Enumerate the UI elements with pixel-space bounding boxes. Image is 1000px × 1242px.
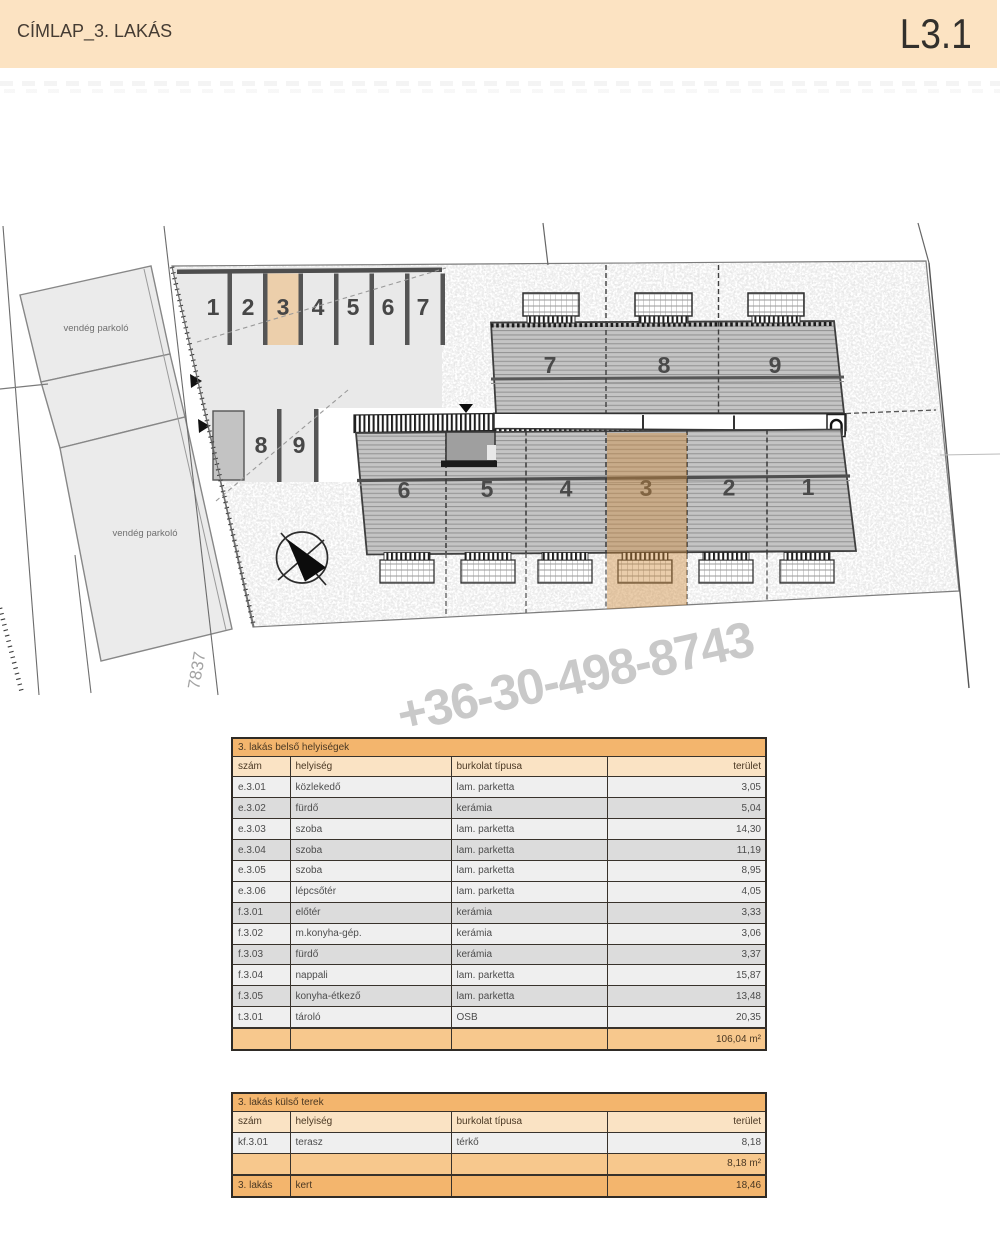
svg-text:2: 2 (242, 294, 255, 320)
svg-text:5: 5 (481, 476, 494, 502)
svg-text:9: 9 (293, 432, 306, 458)
svg-text:4: 4 (560, 476, 573, 502)
svg-text:9: 9 (769, 352, 782, 378)
svg-text:1: 1 (207, 294, 220, 320)
svg-text:vendég parkoló: vendég parkoló (64, 323, 129, 334)
svg-text:7837: 7837 (184, 650, 209, 691)
svg-text:vendég parkoló: vendég parkoló (113, 528, 178, 539)
svg-text:6: 6 (382, 294, 395, 320)
svg-text:7: 7 (544, 352, 557, 378)
svg-text:5: 5 (347, 294, 360, 320)
svg-text:1: 1 (802, 474, 815, 500)
svg-text:8: 8 (658, 352, 671, 378)
svg-text:6: 6 (398, 477, 411, 503)
svg-text:8: 8 (255, 432, 268, 458)
svg-text:2: 2 (723, 475, 736, 501)
svg-text:7: 7 (417, 294, 430, 320)
